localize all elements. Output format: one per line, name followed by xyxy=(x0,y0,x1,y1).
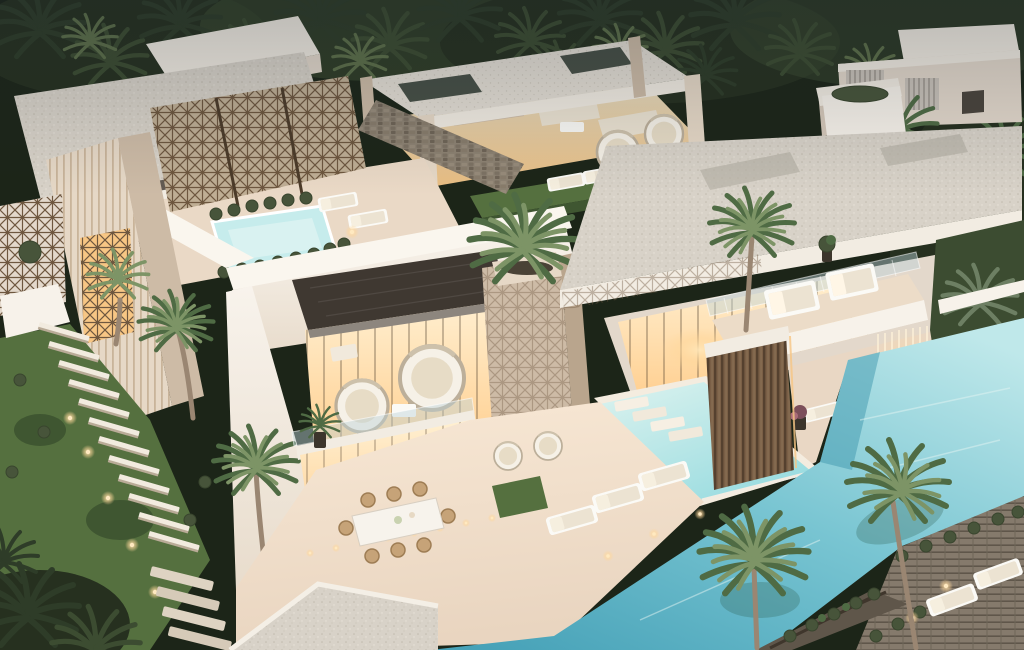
dusk-overlay xyxy=(0,0,1024,650)
villa-render: Aerial dusk view of a modern luxury vill… xyxy=(0,0,1024,650)
